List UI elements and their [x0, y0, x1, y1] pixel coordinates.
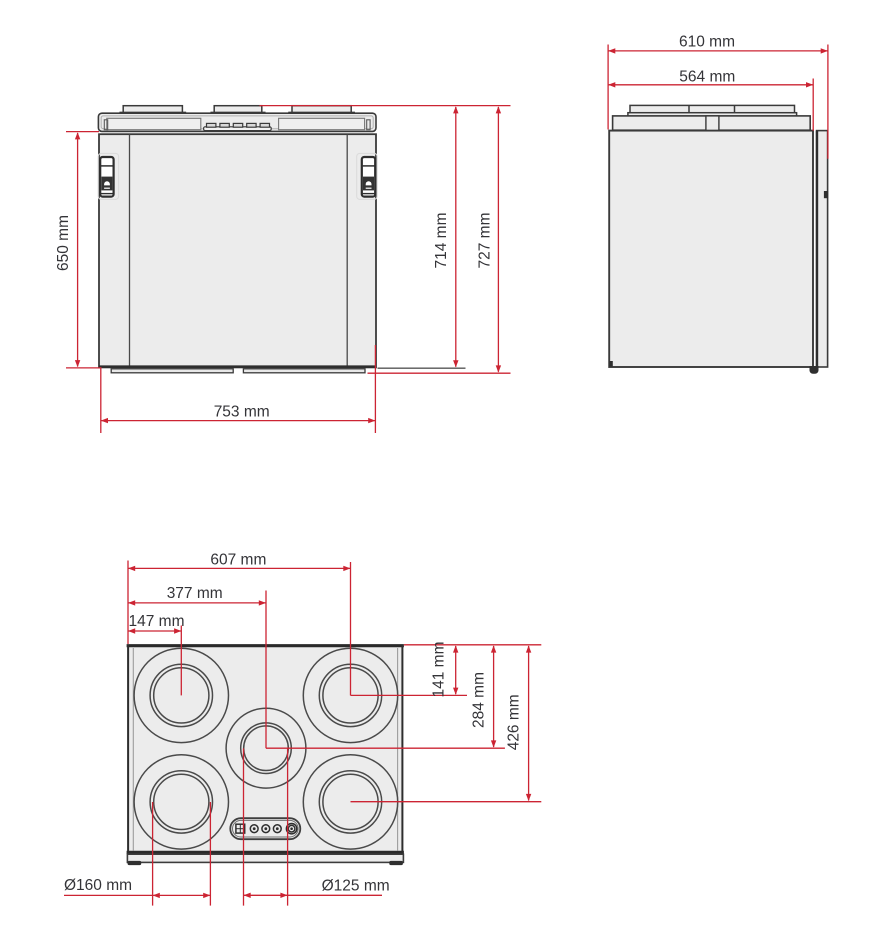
svg-text:564 mm: 564 mm: [679, 68, 735, 85]
svg-text:Ø160 mm: Ø160 mm: [64, 877, 132, 894]
svg-text:147 mm: 147 mm: [129, 613, 185, 630]
svg-text:753 mm: 753 mm: [214, 403, 270, 420]
svg-text:607 mm: 607 mm: [210, 552, 266, 569]
svg-text:Ø125 mm: Ø125 mm: [322, 878, 390, 895]
svg-text:610 mm: 610 mm: [679, 33, 735, 50]
svg-text:426 mm: 426 mm: [506, 694, 523, 750]
svg-text:284 mm: 284 mm: [471, 672, 488, 728]
svg-text:650 mm: 650 mm: [55, 215, 72, 271]
svg-text:727 mm: 727 mm: [476, 213, 493, 269]
svg-text:141 mm: 141 mm: [431, 642, 448, 698]
svg-text:377 mm: 377 mm: [167, 585, 223, 602]
svg-text:714 mm: 714 mm: [433, 213, 450, 269]
